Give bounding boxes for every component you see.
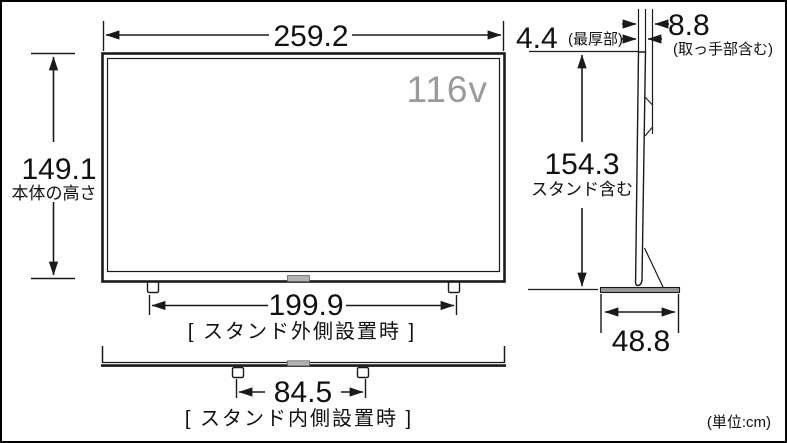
width-dimension-value: 259.2 [273,20,348,53]
thickness-caption: (最厚部) [568,31,623,48]
stand-inner-width-value: 84.5 [274,376,332,409]
side-panel-outline [636,52,646,286]
handle-top-strut [645,97,653,105]
stand-inner-caption: [ スタンド内側設置時 ] [185,407,413,430]
body-height-caption: 本体の高さ [12,184,97,203]
tv-center-tab [288,276,310,282]
tv-foot-left-inner [233,368,244,378]
tv-foot-left [148,282,159,293]
stand-depth-value: 48.8 [612,325,670,358]
body-height-dimension: 149.1 本体の高さ [12,54,97,279]
thickness-value: 4.4 [516,22,558,55]
thickness-with-handle-value: 8.8 [668,9,710,42]
diagram-canvas: 116v 259.2 149.1 本体の高さ 199.9 [ スタンド外側設置時… [2,2,785,441]
stand-depth-dimension: 48.8 [601,294,679,358]
total-height-value: 154.3 [544,148,619,181]
total-height-caption: スタンド含む [531,180,633,199]
tv-center-tab-bottom [288,361,310,366]
tv-bottom-strip-view [101,346,506,378]
screen-size-label: 116v [407,69,489,110]
tv-foot-right-inner [358,368,369,378]
thickness-dimension: 4.4 (最厚部) [516,22,662,55]
stand-outer-caption: [ スタンド外側設置時 ] [188,320,416,343]
thickness-with-handle-dimension: 8.8 (取っ手部含む) [622,9,773,58]
width-dimension: 259.2 [104,20,504,53]
stand-inner-dimension: 84.5 [ スタンド内側設置時 ] [185,376,413,430]
dimension-diagram: 116v 259.2 149.1 本体の高さ 199.9 [ スタンド外側設置時… [0,0,787,443]
stand-neck-line [645,248,664,287]
stand-outer-dimension: 199.9 [ スタンド外側設置時 ] [150,289,457,343]
body-height-value: 149.1 [21,153,96,186]
stand-base [601,288,680,293]
total-height-dimension: 154.3 スタンド含む [528,52,638,290]
unit-note: (単位:cm) [707,414,771,431]
tv-foot-right [449,282,460,293]
tv-front-view: 116v [103,54,505,293]
handle-bottom-strut [645,127,653,136]
thickness-with-handle-caption: (取っ手部含む) [673,41,773,58]
stand-outer-width-value: 199.9 [268,289,343,322]
